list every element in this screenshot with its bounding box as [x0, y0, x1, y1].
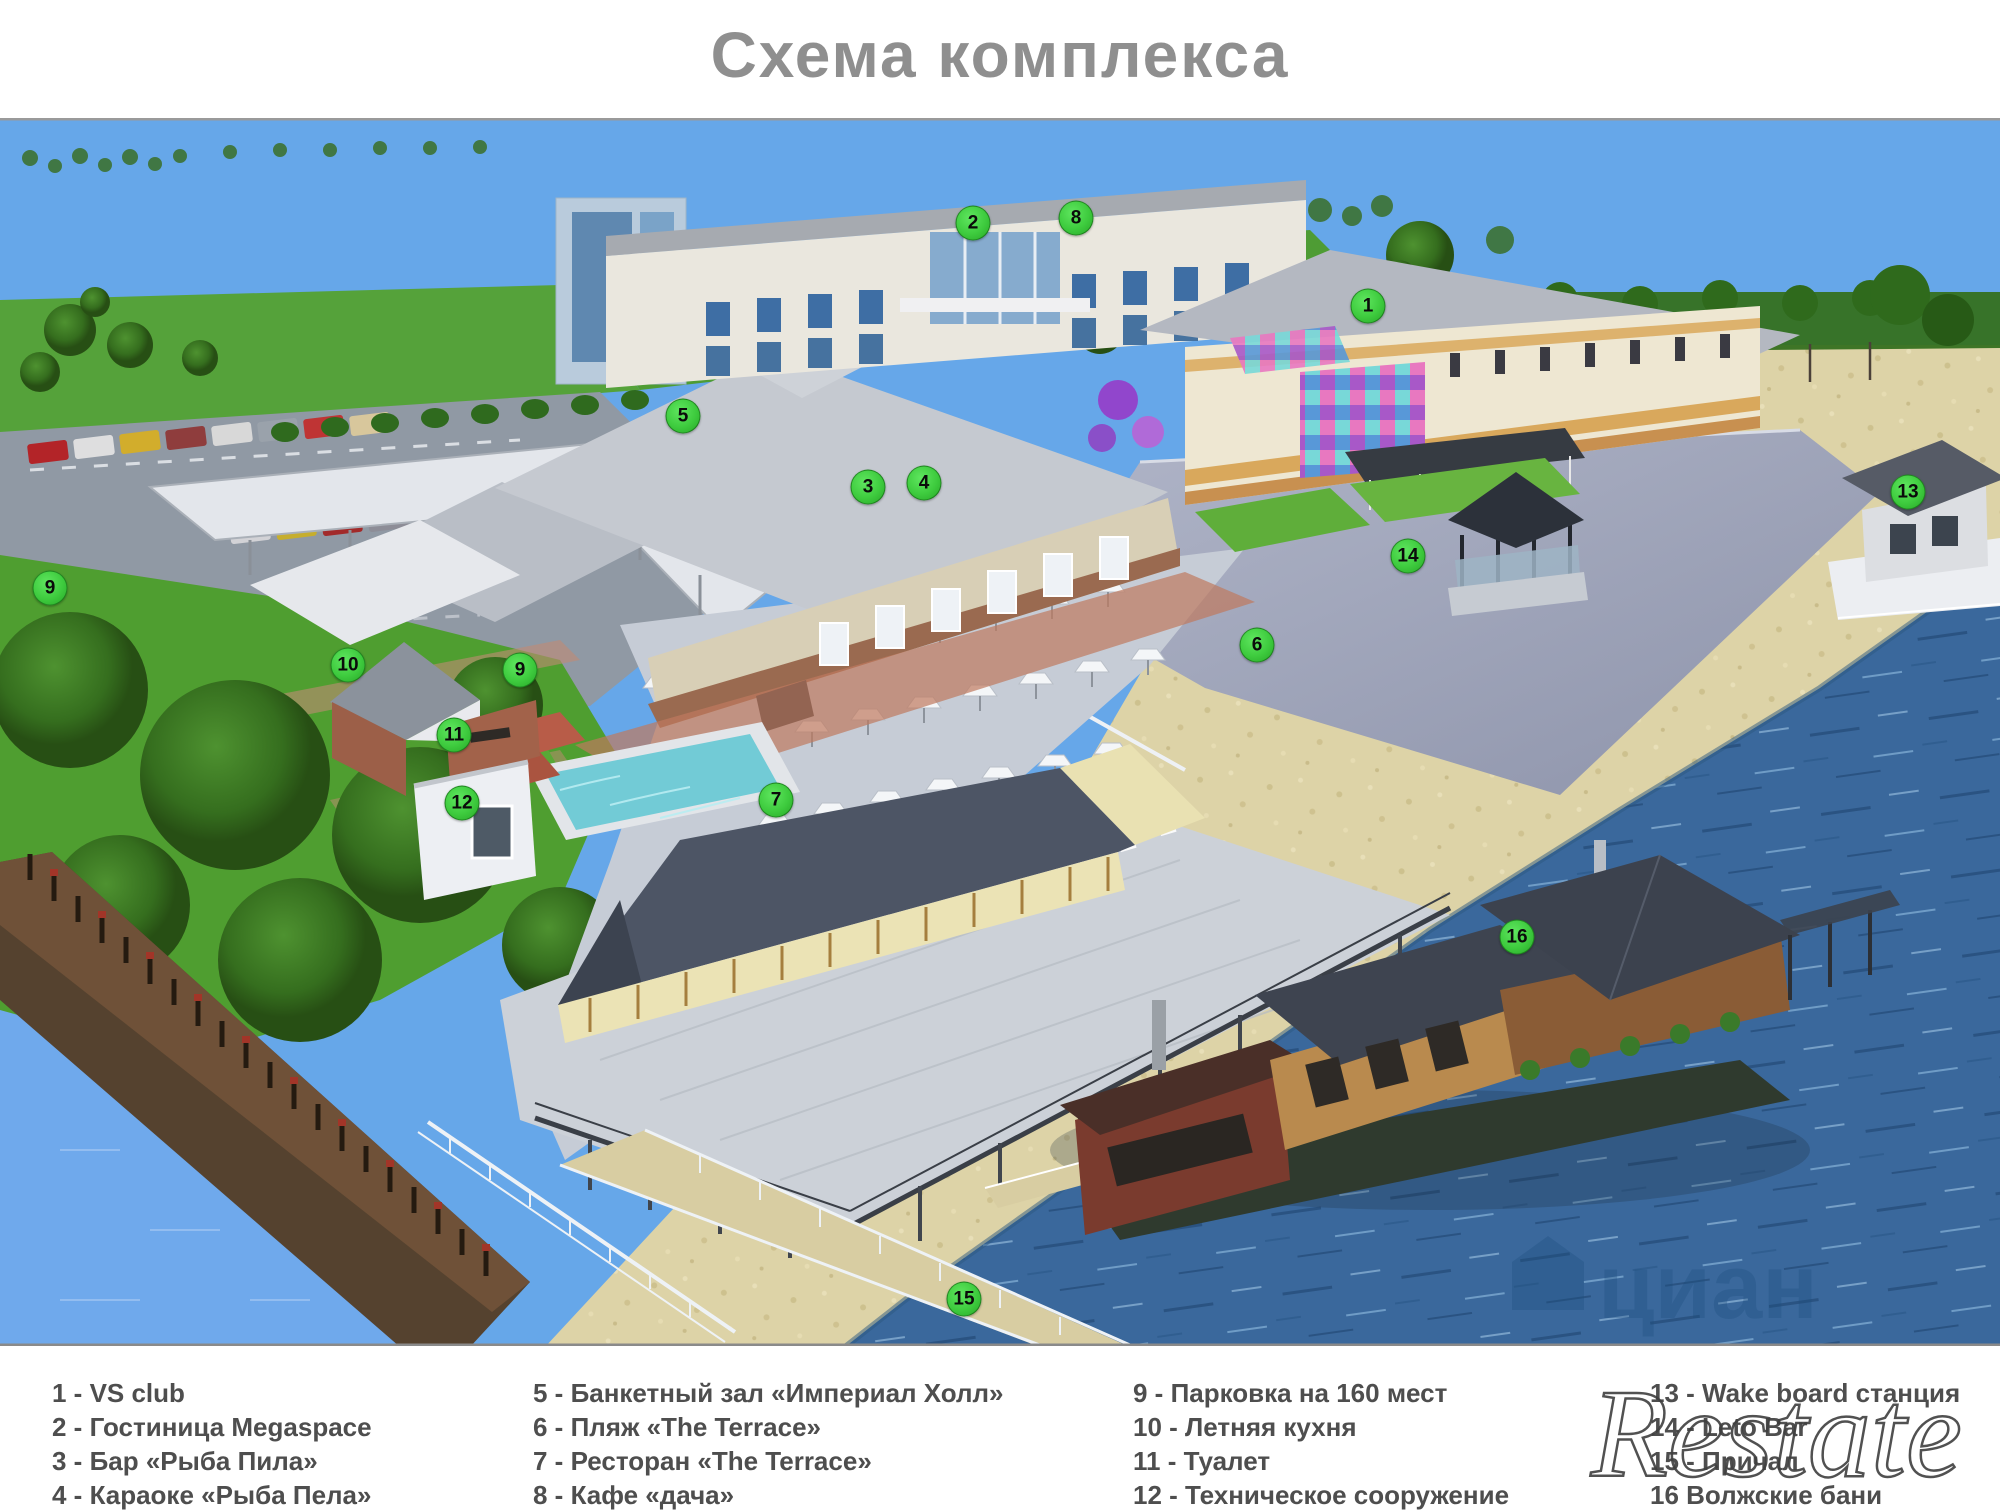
map-marker-14: 14: [1391, 539, 1426, 574]
svg-text:циан: циан: [1598, 1236, 1818, 1338]
legend-item: 2 - Гостиница Megaspace: [52, 1410, 372, 1444]
map-marker-2: 2: [956, 206, 991, 241]
technical-building: [414, 762, 536, 900]
map-render: циан: [0, 0, 2000, 1506]
map-marker-8: 8: [1059, 201, 1094, 236]
legend: 1 - VS club2 - Гостиница Megaspace3 - Ба…: [0, 1376, 2000, 1506]
legend-column-4: 13 - Wake board станция14 - Leto Bar15 -…: [1650, 1376, 1960, 1512]
legend-column-2: 5 - Банкетный зал «Империал Холл»6 - Пля…: [533, 1376, 1004, 1512]
legend-item: 8 - Кафе «дача»: [533, 1478, 1004, 1512]
map-marker-3: 3: [851, 470, 886, 505]
complex-map: циан 123456789910111213141516 Restate: [0, 0, 2000, 1506]
legend-item: 16 Волжские бани: [1650, 1478, 1960, 1512]
map-marker-13: 13: [1891, 475, 1926, 510]
map-marker-9: 9: [503, 653, 538, 688]
legend-item: 6 - Пляж «The Terrace»: [533, 1410, 1004, 1444]
legend-column-1: 1 - VS club2 - Гостиница Megaspace3 - Ба…: [52, 1376, 372, 1512]
map-marker-12: 12: [445, 786, 480, 821]
legend-item: 13 - Wake board станция: [1650, 1376, 1960, 1410]
legend-item: 4 - Караоке «Рыба Пела»: [52, 1478, 372, 1512]
legend-item: 10 - Летняя кухня: [1133, 1410, 1509, 1444]
legend-item: 9 - Парковка на 160 мест: [1133, 1376, 1509, 1410]
map-marker-10: 10: [331, 648, 366, 683]
legend-item: 1 - VS club: [52, 1376, 372, 1410]
legend-item: 11 - Туалет: [1133, 1444, 1509, 1478]
legend-item: 5 - Банкетный зал «Империал Холл»: [533, 1376, 1004, 1410]
map-marker-6: 6: [1240, 628, 1275, 663]
map-marker-11: 11: [437, 718, 472, 753]
map-marker-4: 4: [907, 466, 942, 501]
legend-item: 3 - Бар «Рыба Пила»: [52, 1444, 372, 1478]
legend-item: 7 - Ресторан «The Terrace»: [533, 1444, 1004, 1478]
map-marker-1: 1: [1351, 289, 1386, 324]
map-marker-7: 7: [759, 783, 794, 818]
legend-item: 12 - Техническое сооружение: [1133, 1478, 1509, 1512]
legend-item: 14 - Leto Bar: [1650, 1410, 1960, 1444]
legend-item: 15 - Причал: [1650, 1444, 1960, 1478]
map-marker-9: 9: [33, 571, 68, 606]
map-marker-16: 16: [1500, 920, 1535, 955]
map-marker-15: 15: [947, 1282, 982, 1317]
map-marker-5: 5: [666, 399, 701, 434]
legend-column-3: 9 - Парковка на 160 мест10 - Летняя кухн…: [1133, 1376, 1509, 1512]
